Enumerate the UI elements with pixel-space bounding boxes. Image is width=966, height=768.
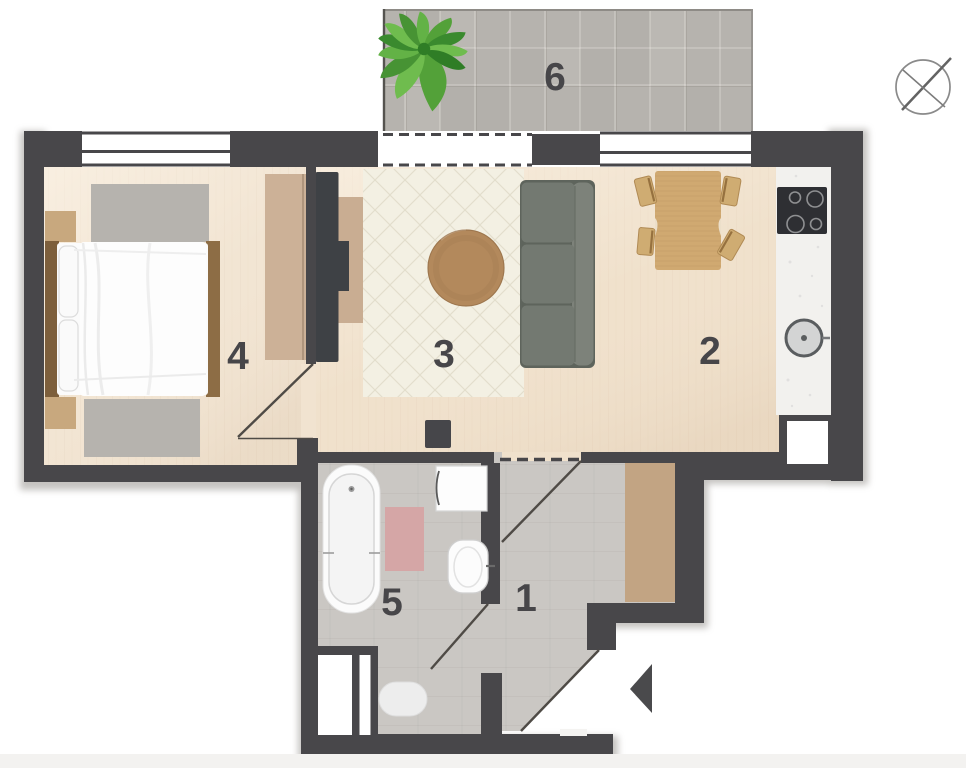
svg-text:4: 4 — [227, 335, 249, 378]
svg-text:3: 3 — [433, 333, 455, 376]
svg-text:6: 6 — [544, 56, 566, 99]
svg-text:2: 2 — [699, 330, 721, 373]
svg-text:5: 5 — [381, 581, 403, 624]
svg-text:1: 1 — [515, 577, 537, 620]
